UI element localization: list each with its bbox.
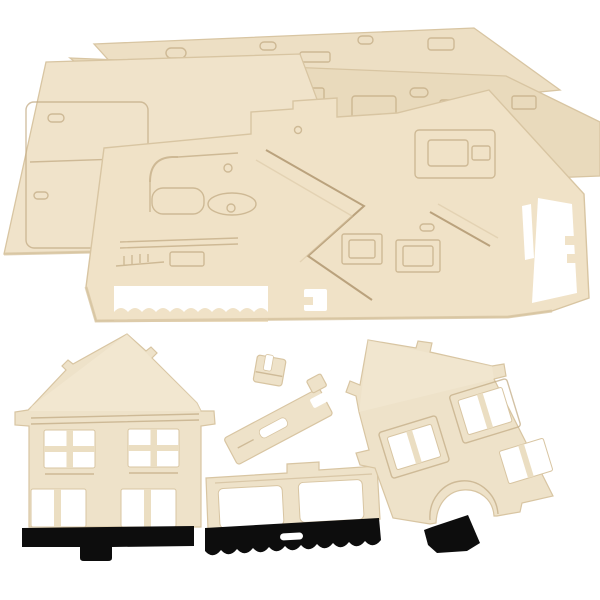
base-slot	[280, 532, 303, 540]
plywood-sheet-stack	[4, 28, 600, 322]
window-wall-right-opening	[298, 479, 364, 522]
window-wall-left-opening	[218, 485, 284, 528]
puzzle-kit-photo-canvas	[0, 0, 600, 600]
product-photo	[0, 0, 600, 600]
window-wall-piece	[205, 462, 381, 555]
